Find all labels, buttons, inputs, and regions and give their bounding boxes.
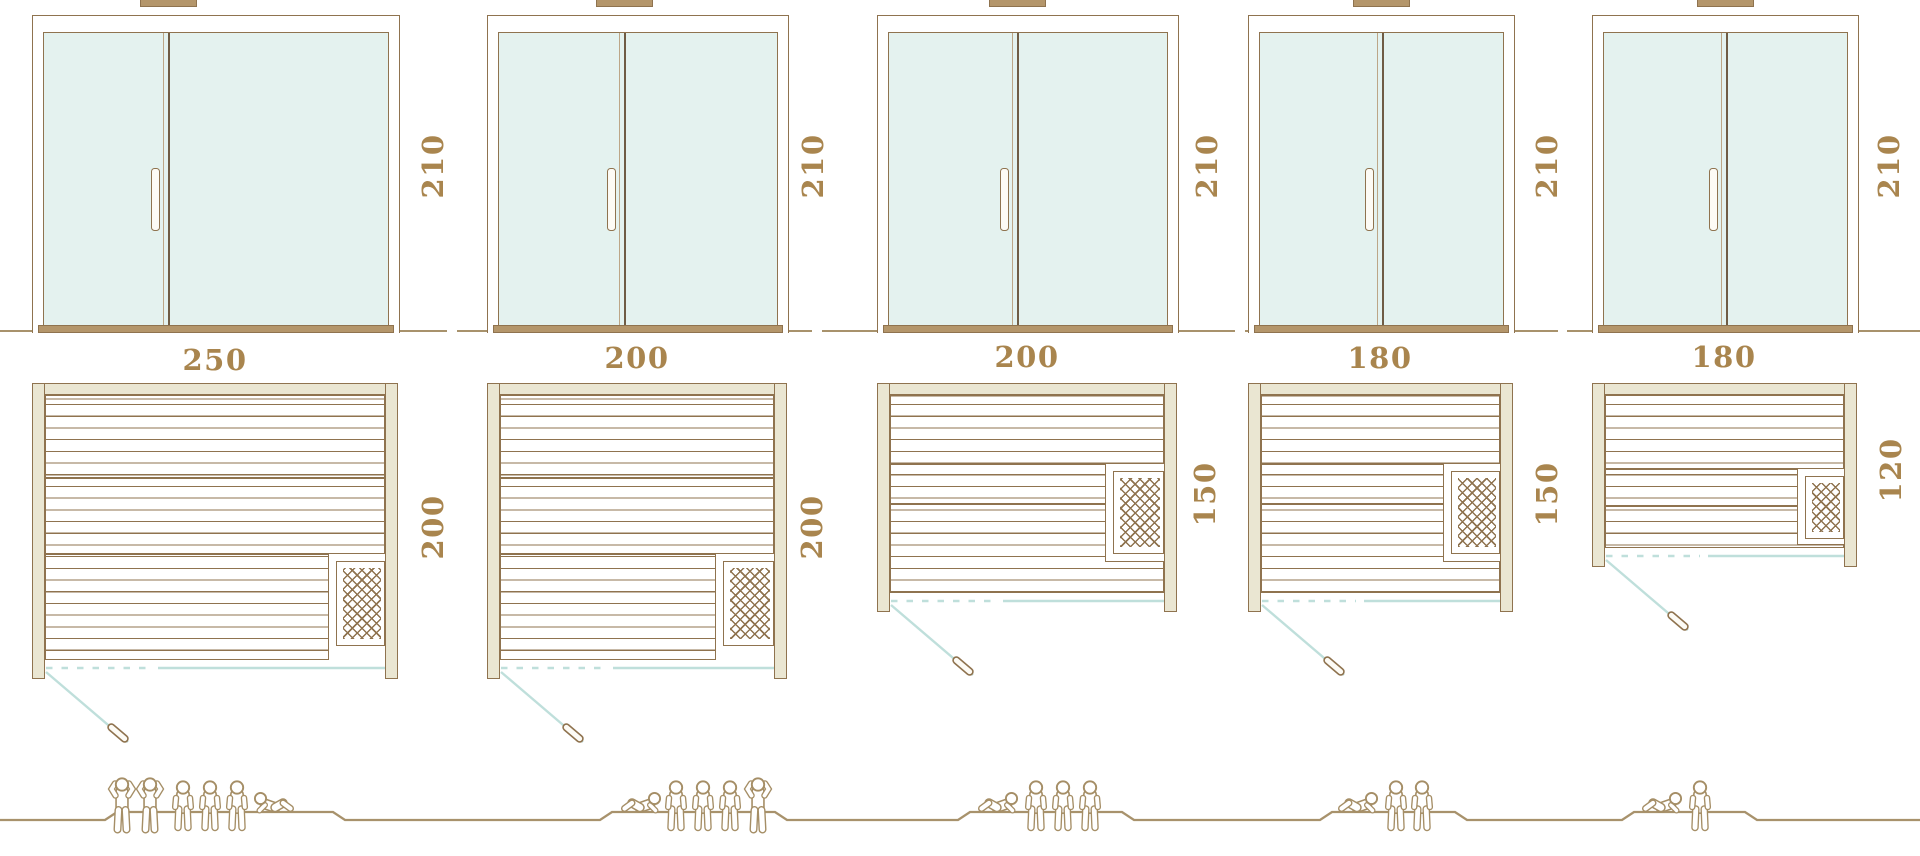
- sitting-person-icon: [229, 781, 245, 827]
- sitting-person-icon: [175, 781, 191, 827]
- lying-person-icon: [1342, 793, 1378, 811]
- capacity-row: .fo{stroke:#a58e66;fill:none;stroke-line…: [0, 740, 1920, 856]
- sitting-person-icon: [695, 781, 711, 827]
- lying-person-icon: [255, 793, 291, 811]
- lying-person-icon: [982, 793, 1018, 811]
- sitting-person-icon: [1028, 781, 1044, 827]
- standing-person-icon: [140, 778, 161, 829]
- sitting-person-icon: [1082, 781, 1098, 827]
- sitting-person-icon: [668, 781, 684, 827]
- lying-person-icon: [1646, 793, 1682, 811]
- capacity-figures-5: [1646, 781, 1708, 827]
- plan-door-handle-icon: [1323, 656, 1346, 677]
- standing-person-icon: [748, 778, 769, 829]
- door-swing-overlay: [0, 0, 1920, 856]
- capacity-baseline: [0, 812, 1920, 820]
- plan-door-handle-icon: [1667, 611, 1690, 632]
- sauna-size-diagram: 210 250 200 210 200 200: [0, 0, 1920, 856]
- sitting-person-icon: [1414, 781, 1430, 827]
- sitting-person-icon: [1388, 781, 1404, 827]
- sitting-person-icon: [202, 781, 218, 827]
- sitting-person-icon: [1055, 781, 1071, 827]
- plan-door-handle-icon: [952, 656, 975, 677]
- sitting-person-icon: [1692, 781, 1708, 827]
- lying-person-icon: [625, 793, 661, 811]
- standing-person-icon: [112, 778, 133, 829]
- sitting-person-icon: [722, 781, 738, 827]
- capacity-figures-1: [112, 778, 291, 829]
- capacity-figures-4: [1342, 781, 1430, 827]
- capacity-figures-3: [982, 781, 1098, 827]
- capacity-figures-2: [625, 778, 769, 829]
